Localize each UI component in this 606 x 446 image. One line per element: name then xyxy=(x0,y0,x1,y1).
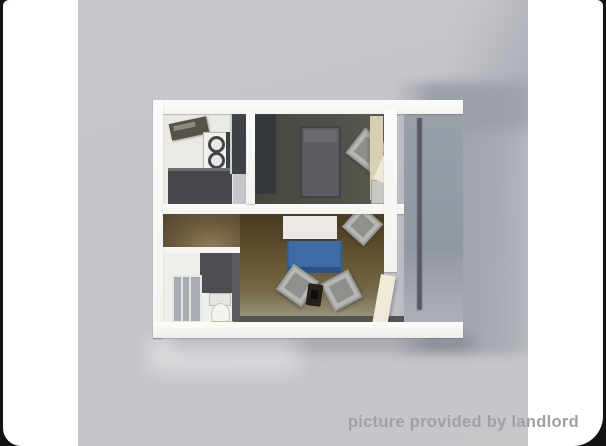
wall-divider xyxy=(163,204,404,214)
stove-burner xyxy=(208,152,225,169)
hallway-floor xyxy=(163,214,240,247)
floorplan-photo xyxy=(78,0,528,446)
dining-table xyxy=(283,216,337,239)
bed xyxy=(300,126,341,198)
bathroom-side-wall xyxy=(232,253,240,328)
wall-right xyxy=(384,110,397,272)
kitchen-counter xyxy=(168,168,232,207)
wall-top xyxy=(153,100,463,114)
shower xyxy=(172,275,202,323)
bathroom xyxy=(163,247,240,328)
bedroom-closet xyxy=(255,112,276,194)
wall-left xyxy=(153,100,163,338)
wall-kitchen-bedroom xyxy=(246,112,255,204)
light-reflection xyxy=(148,338,298,372)
image-card: picture provided by landlord xyxy=(3,0,603,446)
wall-bottom xyxy=(153,322,463,338)
balcony-floor xyxy=(404,114,463,322)
balcony-wall-edge xyxy=(417,118,422,310)
watermark-text: picture provided by landlord xyxy=(348,413,579,432)
plant xyxy=(306,283,324,307)
stove-burner xyxy=(208,136,225,153)
